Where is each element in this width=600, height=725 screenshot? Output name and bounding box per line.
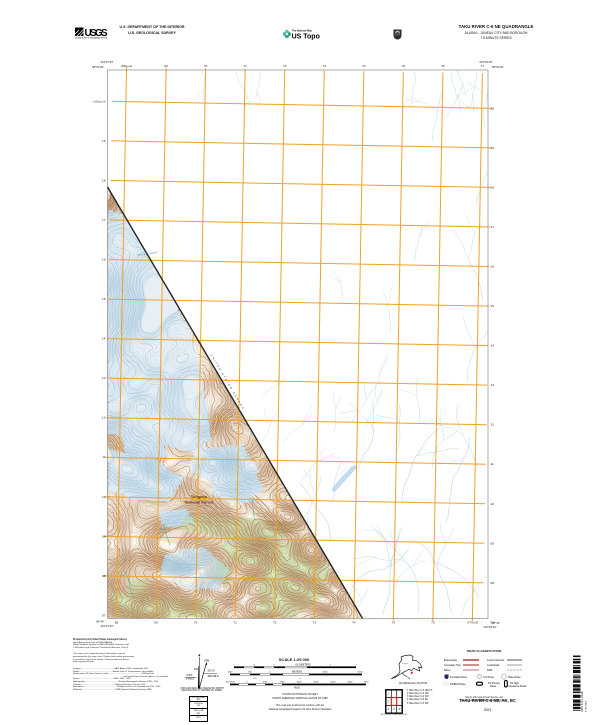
svg-text:15: 15	[102, 297, 106, 301]
svg-text:12: 12	[102, 416, 106, 420]
svg-text:MN: MN	[205, 659, 210, 663]
svg-text:METERS: METERS	[292, 671, 302, 674]
svg-text:08: 08	[491, 581, 495, 585]
svg-text:2000: 2000	[280, 682, 286, 684]
svg-text:20: 20	[491, 106, 495, 110]
svg-text:70: 70	[204, 64, 208, 68]
svg-text:1000: 1000	[323, 672, 329, 674]
svg-text:1000: 1000	[263, 682, 269, 684]
svg-text:Expressway: Expressway	[444, 659, 458, 662]
svg-text:09: 09	[491, 541, 495, 545]
svg-text:76: 76	[431, 621, 435, 625]
svg-text:15: 15	[491, 304, 495, 308]
svg-text:KILOMETERS: KILOMETERS	[295, 663, 311, 666]
svg-text:6000: 6000	[348, 682, 354, 684]
svg-text:18: 18	[102, 178, 106, 182]
svg-text:71: 71	[233, 621, 237, 625]
svg-text:1: 1	[233, 664, 235, 666]
svg-text:133°52'30": 133°52'30"	[479, 60, 493, 64]
svg-text:13: 13	[491, 383, 495, 387]
svg-text:4: 4	[393, 707, 395, 711]
svg-text:13: 13	[102, 376, 106, 380]
svg-text:20°17': 20°17'	[208, 669, 216, 673]
svg-text:10: 10	[491, 502, 495, 506]
svg-text:07: 07	[102, 613, 106, 617]
svg-text:1: 1	[329, 664, 331, 666]
svg-text:17: 17	[102, 218, 106, 222]
svg-text:1: 1	[387, 692, 389, 696]
svg-text:6520000mN: 6520000mN	[93, 99, 106, 103]
svg-text:14: 14	[102, 337, 106, 341]
svg-text:Tongass: Tongass	[191, 494, 208, 499]
svg-text:GN: GN	[194, 667, 198, 671]
svg-text:72: 72	[283, 64, 287, 68]
svg-text:5000: 5000	[331, 682, 337, 684]
svg-text:2: 2	[387, 699, 389, 703]
svg-text:73: 73	[312, 621, 316, 625]
svg-text:58°52'30": 58°52'30"	[92, 65, 104, 69]
svg-text:0: 0	[299, 678, 301, 680]
svg-text:9 781098 6: 9 781098 6	[586, 700, 588, 712]
svg-text:74: 74	[352, 621, 356, 625]
svg-text:133°52'30": 133°52'30"	[483, 625, 497, 629]
svg-text:0°18': 0°18'	[187, 673, 193, 677]
svg-text:69: 69	[154, 621, 158, 625]
svg-text:Local Road: Local Road	[487, 664, 500, 667]
svg-text:Interstate Route: Interstate Route	[450, 676, 468, 679]
svg-text:75: 75	[392, 621, 396, 625]
svg-text:76: 76	[441, 64, 445, 68]
svg-text:12: 12	[491, 423, 495, 427]
svg-text:Local Connector: Local Connector	[487, 659, 505, 662]
svg-text:134°07'30": 134°07'30"	[100, 624, 114, 628]
svg-text:State Route: State Route	[508, 676, 521, 679]
svg-text:73: 73	[322, 64, 326, 68]
svg-text:0.5: 0.5	[253, 678, 257, 680]
svg-text:16: 16	[491, 265, 495, 269]
svg-text:Secondary Hwy: Secondary Hwy	[444, 664, 462, 667]
svg-text:134°07'30": 134°07'30"	[100, 60, 114, 64]
svg-text:11: 11	[491, 462, 494, 466]
svg-text:69: 69	[164, 64, 168, 68]
svg-text:368000mE: 368000mE	[121, 64, 133, 68]
svg-text:Ramp: Ramp	[444, 669, 451, 672]
svg-text:5: 5	[399, 707, 401, 711]
svg-text:19: 19	[491, 146, 495, 150]
svg-text:72: 72	[273, 621, 277, 625]
svg-text:FS/BLM Route: FS/BLM Route	[450, 683, 466, 686]
svg-text:Clearance Route: Clearance Route	[509, 685, 528, 688]
svg-text:74: 74	[362, 64, 366, 68]
svg-text:7000: 7000	[364, 682, 370, 684]
svg-text:ISBN 978-1-09-86: ISBN 978-1-09-86	[580, 691, 584, 712]
svg-text:10: 10	[102, 495, 106, 499]
svg-text:58°45': 58°45'	[96, 620, 104, 624]
svg-text:4000: 4000	[314, 682, 320, 684]
svg-text:3: 3	[387, 707, 389, 711]
svg-text:75: 75	[402, 64, 406, 68]
svg-text:5 MILS: 5 MILS	[186, 677, 194, 681]
svg-text:.5: .5	[253, 664, 256, 666]
svg-text:09: 09	[102, 534, 106, 538]
svg-text:Route: Route	[490, 685, 497, 688]
svg-text:MILE: MILE	[294, 687, 300, 690]
svg-text:17: 17	[491, 225, 495, 229]
svg-text:77: 77	[481, 64, 485, 68]
svg-text:0: 0	[269, 672, 271, 674]
svg-text:1000: 1000	[228, 672, 234, 674]
svg-text:16: 16	[102, 258, 106, 262]
svg-text:360 MILS: 360 MILS	[208, 674, 219, 678]
svg-text:2000: 2000	[358, 672, 364, 674]
svg-text:08: 08	[102, 574, 106, 578]
svg-text:500: 500	[248, 672, 252, 674]
svg-text:US Route: US Route	[484, 676, 495, 679]
svg-text:18: 18	[491, 185, 495, 189]
svg-text:68: 68	[115, 621, 119, 625]
svg-text:3000: 3000	[297, 682, 303, 684]
svg-text:0: 0	[246, 682, 248, 684]
svg-text:0: 0	[273, 664, 275, 666]
svg-text:58°52'30": 58°52'30"	[492, 65, 504, 69]
svg-text:2: 2	[355, 664, 357, 666]
svg-text:70: 70	[194, 621, 198, 625]
svg-text:National Forest: National Forest	[184, 500, 214, 505]
svg-text:1000 500: 1000 500	[225, 682, 235, 684]
svg-text:19: 19	[102, 139, 106, 143]
svg-text:14: 14	[491, 344, 495, 348]
svg-text:4WD: 4WD	[487, 669, 493, 672]
svg-text:71: 71	[243, 64, 247, 68]
svg-text:11: 11	[102, 455, 105, 459]
